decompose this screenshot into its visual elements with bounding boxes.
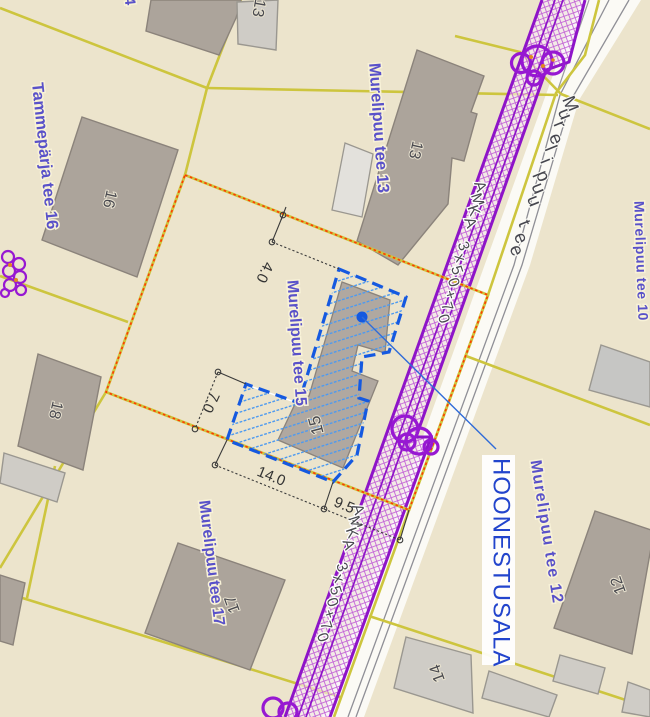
svg-text:13: 13 [248, 0, 268, 18]
svg-text:HOONESTUSALA: HOONESTUSALA [488, 458, 515, 667]
